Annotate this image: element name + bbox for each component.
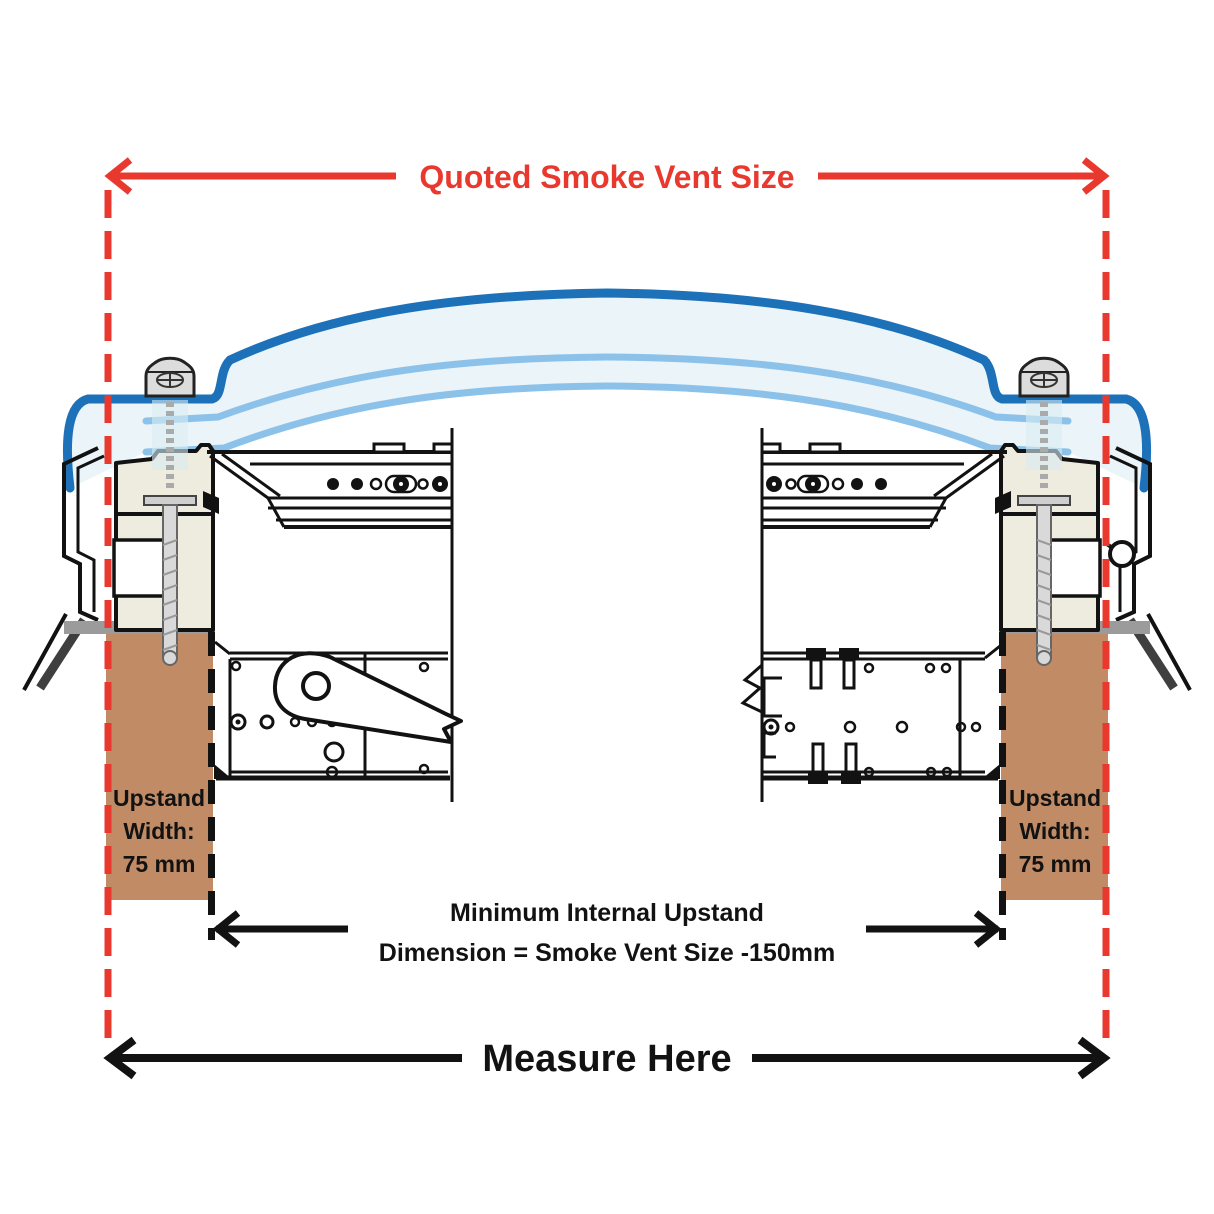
smoke-vent-diagram: Quoted Smoke Vent Size Minimum Internal … <box>0 0 1214 1214</box>
internal-dim-label-line1: Minimum Internal Upstand <box>450 899 764 927</box>
upstand-right-line1: Upstand <box>1009 785 1101 811</box>
plate-holes-right <box>764 664 980 776</box>
upstand-left-line3: 75 mm <box>123 851 196 877</box>
measure-here-label: Measure Here <box>482 1038 731 1080</box>
actuator-pivot-hole <box>303 673 329 699</box>
quoted-size-label: Quoted Smoke Vent Size <box>419 159 794 195</box>
internal-dim-label-line2: Dimension = Smoke Vent Size -150mm <box>379 939 835 967</box>
screw-washer <box>144 496 196 505</box>
measure-here-dimension: Measure Here <box>110 1038 1104 1080</box>
vent-mechanism-right <box>743 646 1000 784</box>
upstand-width-label-left: Upstand Width: 75 mm <box>113 785 205 877</box>
break-zigzag <box>743 665 762 712</box>
mount-bracket-lower <box>764 733 776 757</box>
upstand-left-line2: Width: <box>123 818 194 844</box>
fixing-cap <box>146 358 194 396</box>
vent-mechanism-left <box>214 642 461 779</box>
upstand-right-line2: Width: <box>1019 818 1090 844</box>
upstand-left-line1: Upstand <box>113 785 205 811</box>
vent-top-rail <box>207 444 452 527</box>
upstand-right-line3: 75 mm <box>1019 851 1092 877</box>
rail-bolt-holes <box>327 476 448 492</box>
upstand-width-label-right: Upstand Width: 75 mm <box>1009 785 1101 877</box>
diagram-canvas: Quoted Smoke Vent Size Minimum Internal … <box>0 0 1214 1214</box>
mount-bracket-upper <box>764 678 782 716</box>
internal-upstand-dimension: Minimum Internal Upstand Dimension = Smo… <box>216 899 998 967</box>
actuator-arm <box>275 653 461 742</box>
screw-tip <box>163 651 177 665</box>
kerb-recess-notch <box>114 540 168 596</box>
